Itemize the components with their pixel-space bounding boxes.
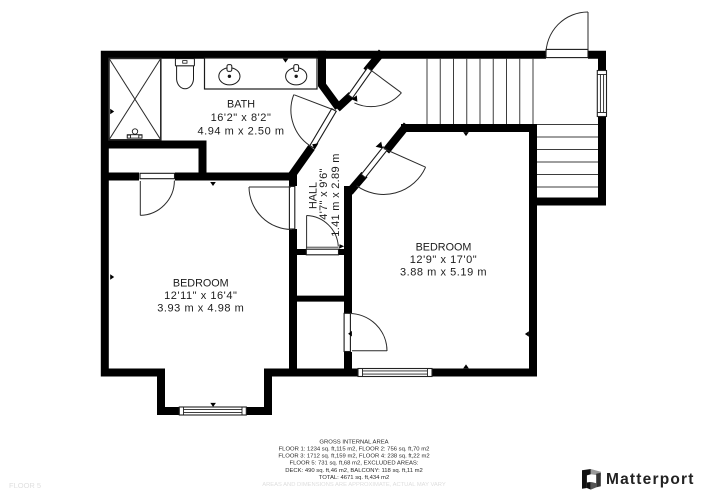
svg-text:FLOOR 1: 1234 sq. ft,115 m2, F: FLOOR 1: 1234 sq. ft,115 m2, FLOOR 2: 75… bbox=[279, 447, 430, 453]
svg-text:TOTAL: 4671 sq. ft,434 m2: TOTAL: 4671 sq. ft,434 m2 bbox=[319, 475, 390, 481]
svg-text:1.41 m x 2.89 m: 1.41 m x 2.89 m bbox=[330, 153, 342, 236]
svg-text:DECK: 490 sq. ft,46 m2, BALCON: DECK: 490 sq. ft,46 m2, BALCONY: 118 sq.… bbox=[285, 468, 423, 474]
svg-text:4'7" x 9'6": 4'7" x 9'6" bbox=[318, 168, 330, 219]
svg-text:GROSS INTERNAL AREA: GROSS INTERNAL AREA bbox=[319, 440, 388, 446]
svg-text:FLOOR 3: 1712 sq. ft,159 m2, F: FLOOR 3: 1712 sq. ft,159 m2, FLOOR 4: 23… bbox=[278, 454, 429, 460]
svg-text:BEDROOM: BEDROOM bbox=[416, 242, 472, 254]
svg-text:12'9" x 17'0": 12'9" x 17'0" bbox=[410, 254, 477, 266]
svg-text:3.93 m x 4.98 m: 3.93 m x 4.98 m bbox=[157, 303, 244, 315]
svg-text:Matterport: Matterport bbox=[606, 471, 695, 488]
svg-text:16'2" x 8'2": 16'2" x 8'2" bbox=[211, 112, 272, 124]
svg-text:FLOOR 5: FLOOR 5 bbox=[9, 481, 41, 490]
svg-text:12'11" x 16'4": 12'11" x 16'4" bbox=[164, 290, 237, 302]
svg-text:AREAS AND DIMENSIONS ARE APPRO: AREAS AND DIMENSIONS ARE APPROXIMATE, AC… bbox=[262, 482, 446, 488]
svg-text:4.94 m x 2.50 m: 4.94 m x 2.50 m bbox=[197, 126, 284, 138]
svg-text:3.88 m x 5.19 m: 3.88 m x 5.19 m bbox=[400, 267, 487, 279]
svg-text:FLOOR 5: 731 sq. ft,68 m2, EXC: FLOOR 5: 731 sq. ft,68 m2, EXCLUDED AREA… bbox=[290, 461, 419, 467]
svg-text:BEDROOM: BEDROOM bbox=[173, 278, 229, 290]
svg-text:BATH: BATH bbox=[227, 99, 255, 111]
